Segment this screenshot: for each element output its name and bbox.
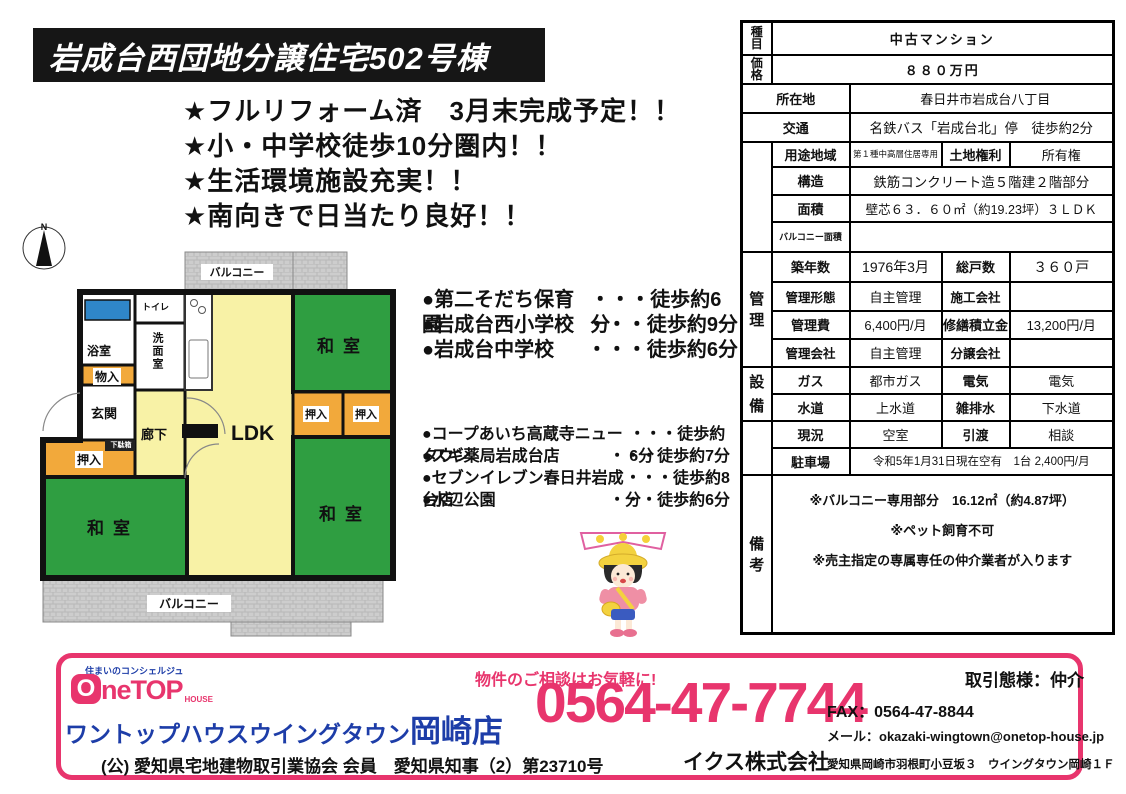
total-units-value: ３６０戸 (1010, 252, 1114, 282)
list-item: ●岩成台中学校・・・徒歩約6分 (422, 338, 738, 363)
builder-label: 施工会社 (942, 282, 1010, 311)
nearby-facilities-list: ●コープあいち高蔵寺ニュータウン・・・徒歩約6分 ●スギ薬局岩成台店・・・徒歩約… (422, 424, 730, 512)
closet-c2-label: 押入 (353, 406, 379, 422)
place-name: ●水辺公園 (422, 490, 496, 512)
land-right-label: 土地権利 (942, 142, 1010, 167)
place-name: ●第二そだち保育園 (422, 288, 590, 313)
phone-number: 0564-47-7744 (535, 674, 866, 732)
entrance-label: 玄関 (91, 403, 117, 422)
property-title: 岩成台西団地分譲住宅502号棟 (49, 33, 488, 78)
place-name: ●岩成台中学校 (422, 338, 554, 363)
corridor-label: 廊下 (141, 424, 167, 443)
shop-name-main: ワントップハウスウイングタウン (65, 721, 410, 747)
place-name: ●コープあいち高蔵寺ニュータウン (422, 424, 629, 446)
repair-fund-value: 13,200円/月 (1010, 311, 1114, 339)
flyer-page: 岩成台西団地分譲住宅502号棟 ★フルリフォーム済 3月末完成予定！！ ★小・中… (0, 0, 1126, 794)
land-right-value: 所有権 (1010, 142, 1114, 167)
water-label: 水道 (772, 394, 850, 421)
face (611, 564, 635, 588)
access-label: 交通 (742, 113, 850, 142)
company-name: イクス株式会社 (683, 746, 829, 776)
mgmt-form-label: 管理形態 (772, 282, 850, 311)
entrance-door-arc (43, 393, 80, 431)
walk-time: ・・・徒歩約6分 (587, 338, 738, 363)
catchphrase: ★南向きで日当たり良好！！ (183, 199, 681, 234)
bathtub (85, 300, 130, 320)
balcony-bottom-ext (231, 622, 351, 636)
logo-top: TOP (131, 676, 183, 704)
shoe (610, 629, 624, 637)
place-name: ●セブンイレブン春日井岩成台店 (422, 468, 625, 490)
developer-value (1010, 339, 1114, 367)
onetop-logo: OneTOPHOUSE (71, 674, 213, 704)
handover-label: 引渡 (942, 421, 1010, 448)
pennant-flower (596, 535, 604, 543)
floor-plan: バルコニー 浴室 トイレ 洗面室 物入 玄関 廊下 下駄箱 押入 LDK 和室 … (35, 248, 425, 638)
walk-time: ・・・徒歩約6分 (609, 490, 730, 512)
child-character-illustration (573, 521, 673, 646)
repair-fund-label: 修繕積立金 (942, 311, 1010, 339)
zoning-value: 第１種中高層住居専用 (850, 142, 942, 167)
remark-line: ※ペット飼育不可 (781, 516, 1105, 546)
mgmt-company-value: 自主管理 (850, 339, 942, 367)
remark-line: ※売主指定の専属専任の仲介業者が入ります (781, 546, 1105, 576)
list-item: ●コープあいち高蔵寺ニュータウン・・・徒歩約6分 (422, 424, 730, 446)
balcony-area-label: バルコニー面積 (772, 222, 850, 252)
shoe (623, 629, 637, 637)
wall-segment (182, 424, 218, 438)
shop-name: ワントップハウスウイングタウン岡崎店 (65, 706, 503, 751)
gas-value: 都市ガス (850, 367, 942, 394)
pennant-flower (619, 533, 627, 541)
zoning-label: 用途地域 (772, 142, 850, 167)
tatami-bl-label: 和室 (87, 514, 139, 539)
drainage-label: 雑排水 (942, 394, 1010, 421)
walk-time: ・・・徒歩約6分 (629, 424, 730, 446)
type-value: 中古マンション (772, 22, 1114, 55)
closet-c1-label: 押入 (303, 406, 329, 422)
built-year-label: 築年数 (772, 252, 850, 282)
catchphrase: ★小・中学校徒歩10分圏内！！ (183, 129, 681, 164)
bath-label: 浴室 (87, 342, 111, 359)
tatami-br-label: 和室 (319, 500, 371, 525)
license-number: (公) 愛知県宅地建物取引業協会 会員 愛知県知事（2）第23710号 (101, 752, 604, 777)
list-item: ●水辺公園・・・徒歩約6分 (422, 490, 730, 512)
parking-label: 駐車場 (772, 448, 850, 475)
kitchen-sink (189, 340, 208, 378)
location-value: 春日井市岩成台八丁目 (850, 84, 1114, 113)
nearby-schools-list: ●第二そだち保育園・・・徒歩約6分 ●岩成台西小学校・・・徒歩約9分 ●岩成台中… (422, 288, 738, 363)
list-item: ●スギ薬局岩成台店・・・徒歩約7分 (422, 446, 730, 468)
property-spec-table: 種目 中古マンション 価格 ８８０万円 所在地 春日井市岩成台八丁目 交通 名鉄… (740, 20, 1115, 635)
total-units-label: 総戸数 (942, 252, 1010, 282)
price-value: ８８０万円 (772, 55, 1114, 84)
balcony-bottom-label: バルコニー (147, 595, 231, 612)
footer-contact-bar: 住まいのコンシェルジュ OneTOPHOUSE ワントップハウスウイングタウン岡… (56, 653, 1083, 780)
deal-type: 取引態様：仲介 (965, 666, 1084, 691)
parking-value: 令和5年1月31日現在空有 1台 2,400円/月 (850, 448, 1114, 475)
property-title-banner: 岩成台西団地分譲住宅502号棟 (33, 28, 545, 82)
toilet-label: トイレ (142, 300, 169, 313)
catchphrase: ★フルリフォーム済 3月末完成予定！！ (183, 94, 681, 129)
list-item: ●セブンイレブン春日井岩成台店・・・徒歩約8分 (422, 468, 730, 490)
catchphrase: ★生活環境施設充実！！ (183, 164, 681, 199)
floor-plan-drawing (35, 248, 425, 638)
company-address: 愛知県岡崎市羽根町小豆坂３ ウイングタウン岡崎１Ｆ (827, 756, 1115, 772)
walk-time: ・・・徒歩約8分 (625, 468, 730, 490)
tatami-tr-label: 和室 (317, 332, 369, 357)
list-item: ●岩成台西小学校・・・徒歩約9分 (422, 313, 738, 338)
mouth (620, 579, 626, 583)
section-strip-utilities: 設備 (742, 367, 772, 421)
access-value: 名鉄バス「岩成台北」停 徒歩約2分 (850, 113, 1114, 142)
logo-o-mark: O (71, 674, 101, 704)
shorts (611, 609, 635, 620)
leg (626, 620, 632, 630)
pennant-flower (642, 535, 650, 543)
fax-number: FAX：0564-47-8844 (827, 698, 974, 722)
place-name: ●スギ薬局岩成台店 (422, 446, 560, 468)
built-year-value: 1976年3月 (850, 252, 942, 282)
place-name: ●岩成台西小学校 (422, 313, 574, 338)
balcony-neighbor-area (293, 252, 347, 292)
closet-left-label: 押入 (75, 451, 103, 468)
section-strip-remarks: 備考 (742, 475, 772, 634)
type-label-cell: 種目 (742, 22, 772, 55)
mgmt-fee-value: 6,400円/月 (850, 311, 942, 339)
area-value: 壁芯６３．６０㎡（約19.23坪）３ＬＤＫ (850, 195, 1114, 222)
walk-time: ・・・徒歩約7分 (609, 446, 730, 468)
water-value: 上水道 (850, 394, 942, 421)
structure-label: 構造 (772, 167, 850, 195)
location-label: 所在地 (742, 84, 850, 113)
storage-label: 物入 (93, 368, 121, 385)
remarks-cell: ※バルコニー専用部分 16.12㎡（約4.87坪） ※ペット飼育不可 ※売主指定… (772, 475, 1114, 634)
handover-value: 相談 (1010, 421, 1114, 448)
mgmt-company-label: 管理会社 (772, 339, 850, 367)
walk-time: ・・・徒歩約9分 (587, 313, 738, 338)
balcony-area-value (850, 222, 1114, 252)
list-item: ●第二そだち保育園・・・徒歩約6分 (422, 288, 738, 313)
logo-house: HOUSE (185, 695, 213, 704)
logo-ne: ne (101, 676, 131, 704)
section-strip-empty2 (742, 421, 772, 475)
structure-value: 鉄筋コンクリート造５階建２階部分 (850, 167, 1114, 195)
washroom-label: 洗面室 (149, 332, 165, 371)
section-strip-management: 管理 (742, 252, 772, 367)
leg (615, 620, 621, 630)
remark-line: ※バルコニー専用部分 16.12㎡（約4.87坪） (781, 486, 1105, 516)
mgmt-form-value: 自主管理 (850, 282, 942, 311)
builder-value (1010, 282, 1114, 311)
area-label: 面積 (772, 195, 850, 222)
mgmt-fee-label: 管理費 (772, 311, 850, 339)
gas-label: ガス (772, 367, 850, 394)
catchphrase-list: ★フルリフォーム済 3月末完成予定！！ ★小・中学校徒歩10分圏内！！ ★生活環… (183, 94, 681, 234)
shoebox-label: 下駄箱 (107, 440, 135, 451)
walk-time: ・・・徒歩約6分 (590, 288, 738, 313)
developer-label: 分譲会社 (942, 339, 1010, 367)
section-strip-empty (742, 142, 772, 252)
price-label-cell: 価格 (742, 55, 772, 84)
status-label: 現況 (772, 421, 850, 448)
shop-name-branch: 岡崎店 (410, 714, 503, 749)
email-address: メール：okazaki-wingtown@onetop-house.jp (827, 726, 1104, 745)
balcony-top-label: バルコニー (201, 264, 273, 280)
ldk-label: LDK (231, 422, 274, 446)
drainage-value: 下水道 (1010, 394, 1114, 421)
electric-value: 電気 (1010, 367, 1114, 394)
status-value: 空室 (850, 421, 942, 448)
electric-label: 電気 (942, 367, 1010, 394)
